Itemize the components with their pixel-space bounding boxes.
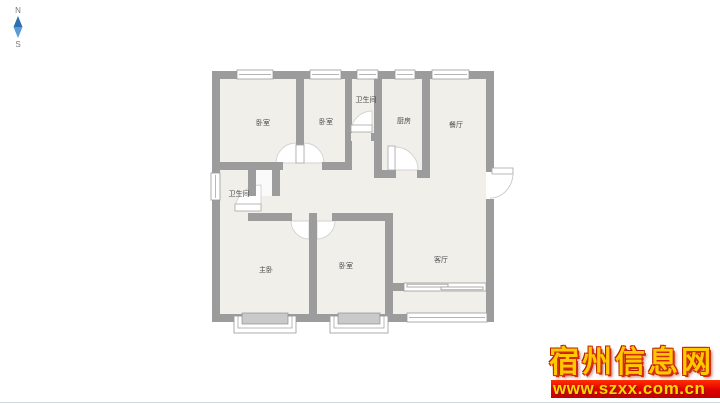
room-label-bathroom-top: 卫生间 bbox=[356, 95, 377, 104]
wall-bedrooms-top-divider bbox=[296, 79, 304, 145]
sliding-door bbox=[404, 283, 486, 291]
compass: N S bbox=[14, 6, 23, 49]
wall-corridor-south-b bbox=[332, 213, 393, 221]
room-label-dining: 餐厅 bbox=[449, 120, 463, 129]
bay-window-bedroom-sill bbox=[338, 313, 380, 324]
room-label-bedroom-bottom: 卧室 bbox=[339, 261, 353, 270]
wall-bathroom-kitchen bbox=[374, 79, 382, 178]
wall-corridor-north-a bbox=[220, 162, 283, 170]
door-opening-bathroom-top bbox=[351, 133, 371, 141]
wall-corridor-north-b bbox=[322, 162, 345, 170]
room-label-bedroom-top-left: 卧室 bbox=[256, 118, 270, 127]
room-label-kitchen: 厨房 bbox=[397, 116, 411, 125]
entry-door bbox=[486, 168, 513, 199]
compass-needle-icon bbox=[14, 16, 23, 27]
floorplan-page: N S bbox=[0, 0, 720, 405]
sliding-door-panel bbox=[407, 284, 448, 287]
wall-bedroom2-bathroom bbox=[345, 79, 352, 170]
wall-kitchen-dining bbox=[422, 79, 430, 178]
wall-balcony-stub bbox=[393, 283, 404, 291]
entry-door-leaf bbox=[492, 168, 513, 174]
wall-corridor-south-a bbox=[248, 213, 292, 221]
wall-master-bedroom-divider bbox=[309, 213, 317, 314]
door-leaf-top-bedrooms bbox=[296, 145, 304, 163]
wall-kitchen-south-b bbox=[417, 170, 430, 178]
bottom-divider bbox=[0, 402, 720, 403]
room-label-bedroom-top-middle: 卧室 bbox=[319, 117, 333, 126]
compass-north-label: N bbox=[15, 6, 21, 15]
wall-niche-stub bbox=[272, 170, 280, 196]
door-leaf-kitchen bbox=[388, 146, 395, 170]
sliding-door-panel bbox=[441, 287, 483, 290]
compass-needle-icon bbox=[14, 27, 23, 38]
wall-kitchen-south-a bbox=[374, 170, 396, 178]
room-label-living: 客厅 bbox=[434, 255, 448, 264]
bay-window-master-sill bbox=[242, 313, 288, 324]
room-label-bathroom-left: 卫生间 bbox=[229, 189, 250, 198]
wall-bedroom-living-divider bbox=[385, 213, 393, 314]
door-leaf-bathroom-top bbox=[351, 125, 372, 132]
compass-south-label: S bbox=[15, 40, 20, 49]
room-label-master-bedroom: 主卧 bbox=[259, 265, 273, 274]
door-leaf-bathroom-left bbox=[235, 204, 261, 211]
watermark-url-banner: www.szxx.com.cn bbox=[551, 380, 720, 398]
entry-door-opening bbox=[486, 172, 494, 199]
watermark-site-name: 宿州信息网 bbox=[549, 344, 720, 384]
